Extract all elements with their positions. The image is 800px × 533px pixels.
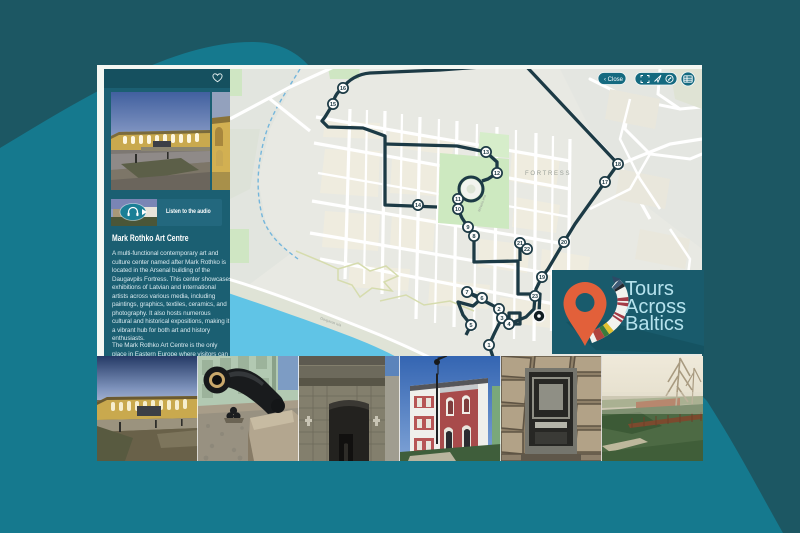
svg-text:19: 19 <box>539 275 545 281</box>
svg-text:‹ Close: ‹ Close <box>604 77 624 83</box>
svg-text:12: 12 <box>494 171 500 177</box>
svg-text:13: 13 <box>483 150 489 156</box>
svg-text:11: 11 <box>455 197 461 203</box>
svg-text:23: 23 <box>532 294 538 300</box>
svg-text:22: 22 <box>524 247 530 253</box>
svg-text:7: 7 <box>465 290 468 296</box>
svg-text:20: 20 <box>561 240 567 246</box>
svg-text:10: 10 <box>455 207 461 213</box>
svg-text:FORTRESS: FORTRESS <box>525 171 571 177</box>
svg-text:14: 14 <box>415 203 421 209</box>
svg-text:15: 15 <box>330 102 336 108</box>
svg-text:17: 17 <box>602 180 608 186</box>
svg-text:18: 18 <box>615 162 621 168</box>
svg-text:16: 16 <box>340 86 346 92</box>
svg-text:2: 2 <box>497 307 500 313</box>
